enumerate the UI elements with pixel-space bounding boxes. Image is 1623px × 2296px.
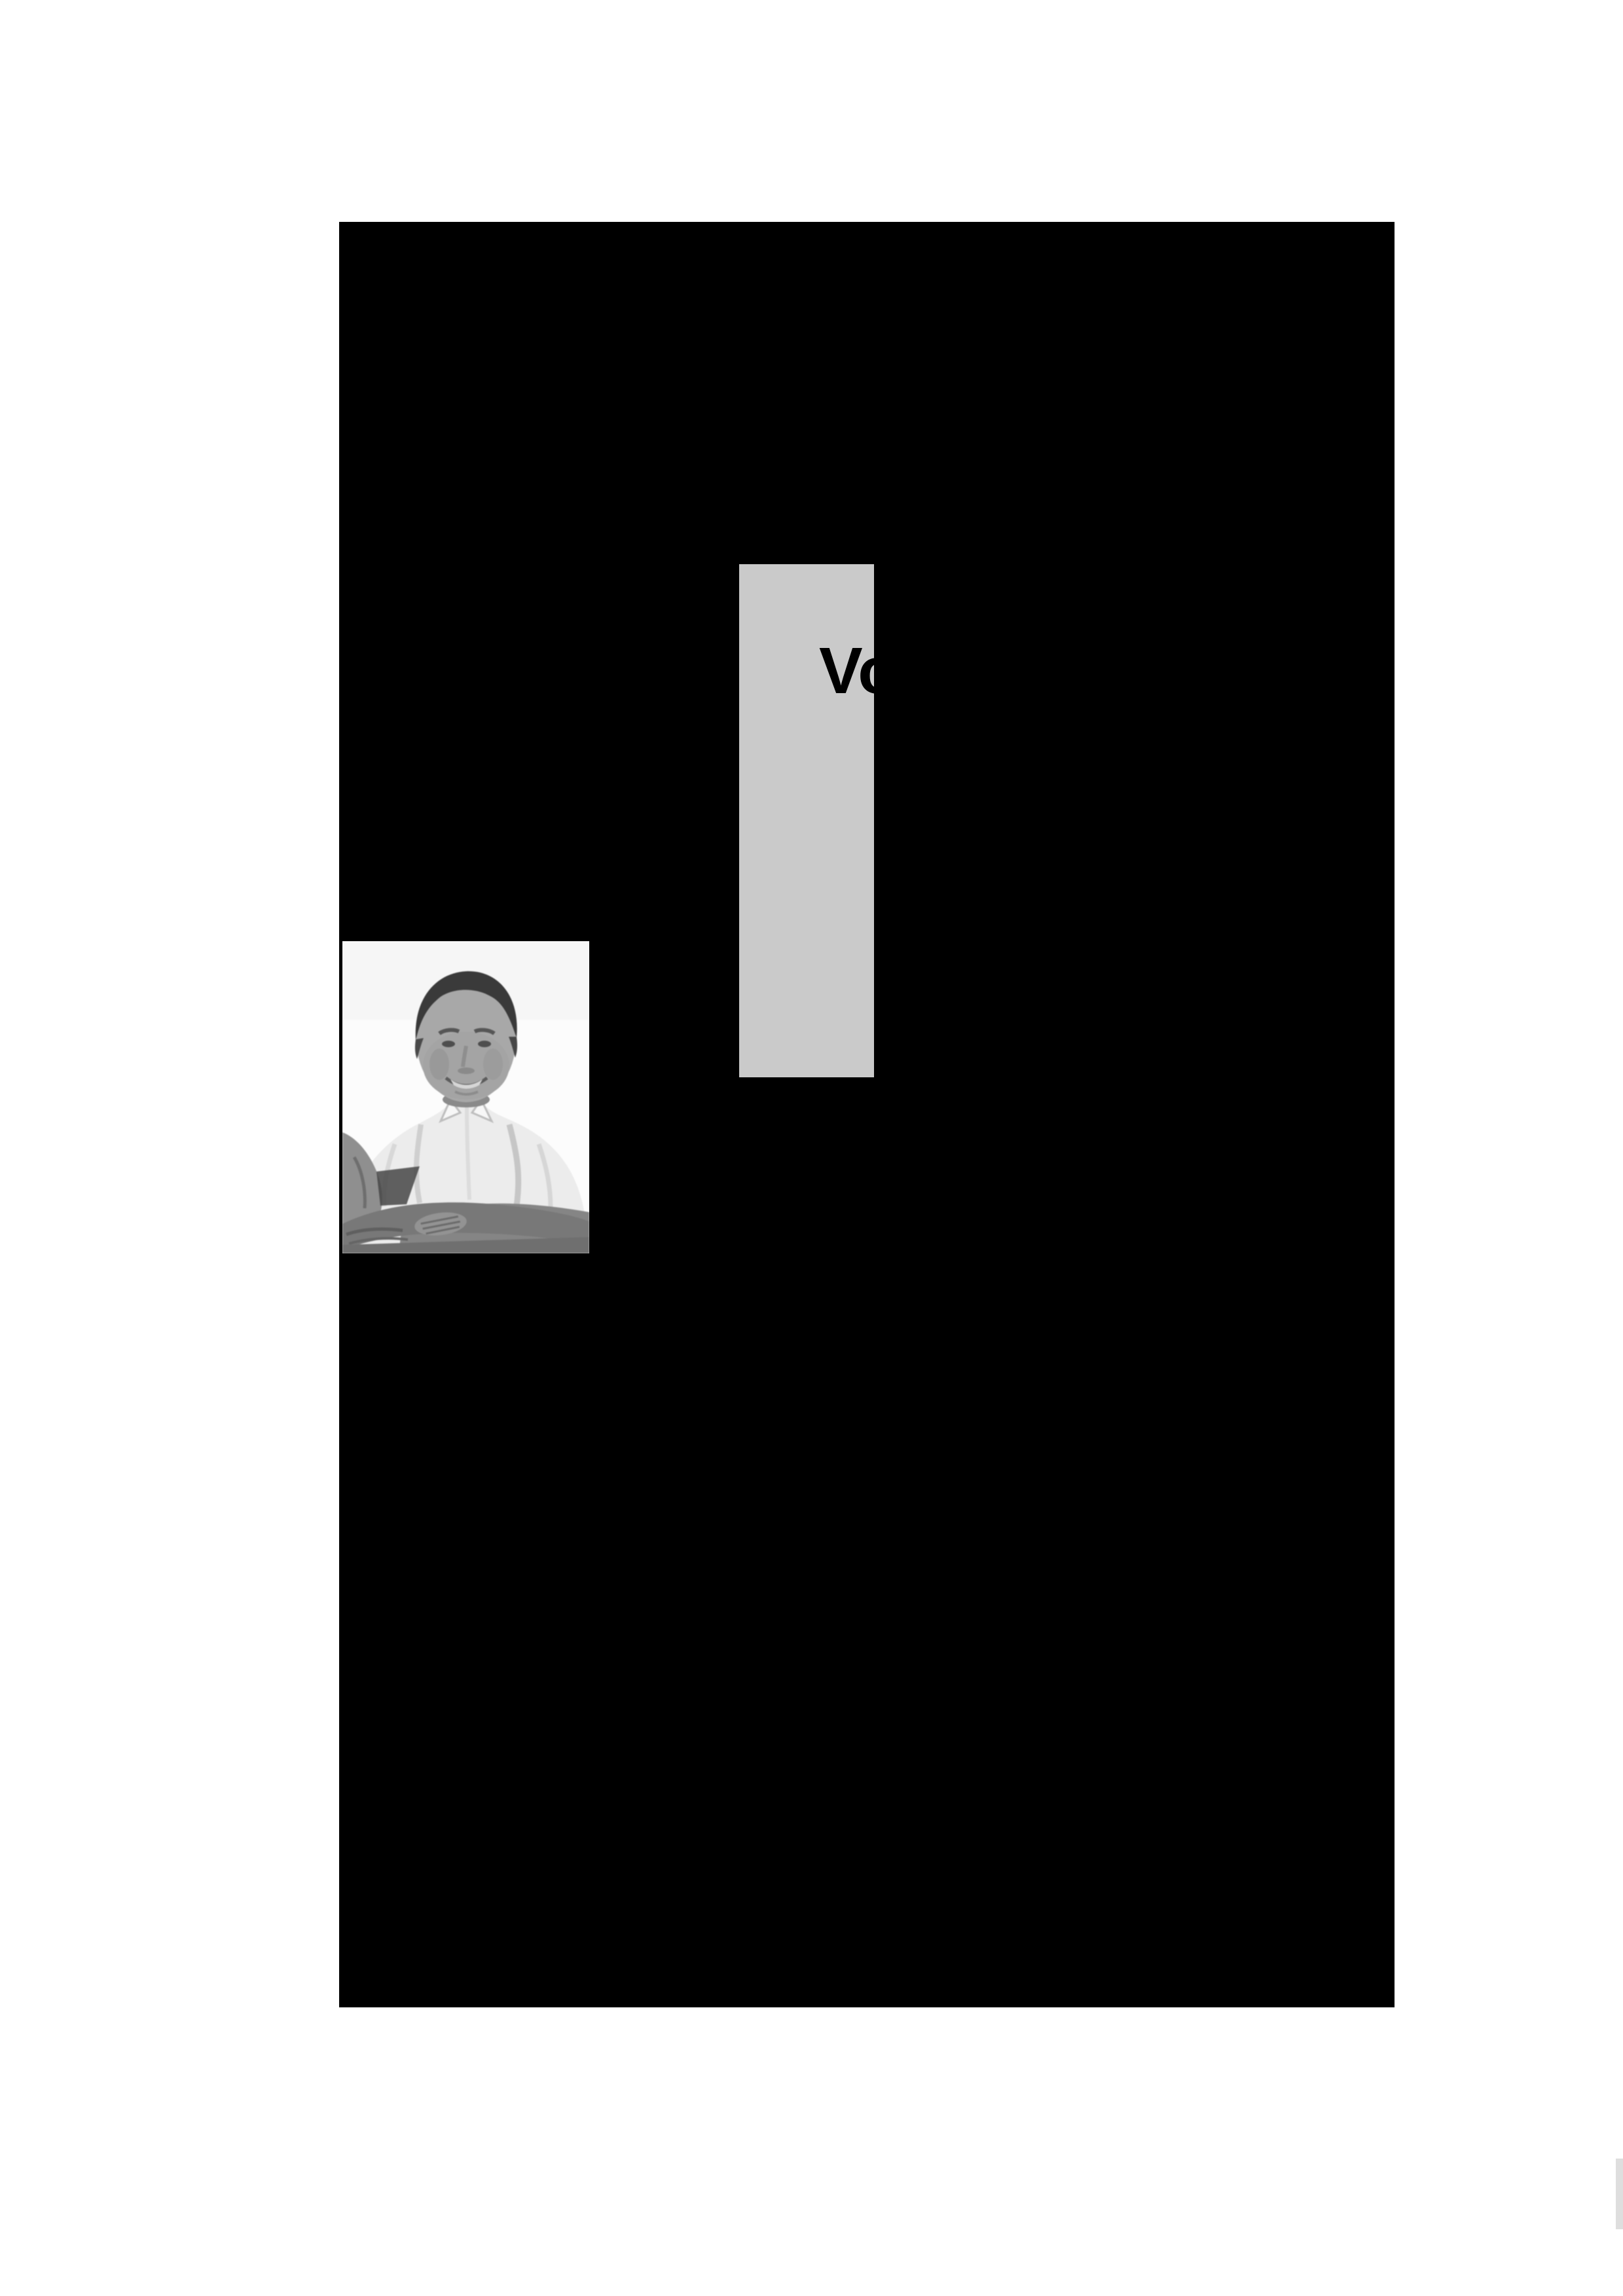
page-number-box: 11 [1616,2159,1623,2229]
portrait-photo [342,941,589,1253]
portrait-illustration [342,941,589,1253]
page-title: Vo [819,638,874,704]
title-band: Vo [739,564,874,1077]
page-canvas: Vo 11 [0,0,1623,2296]
